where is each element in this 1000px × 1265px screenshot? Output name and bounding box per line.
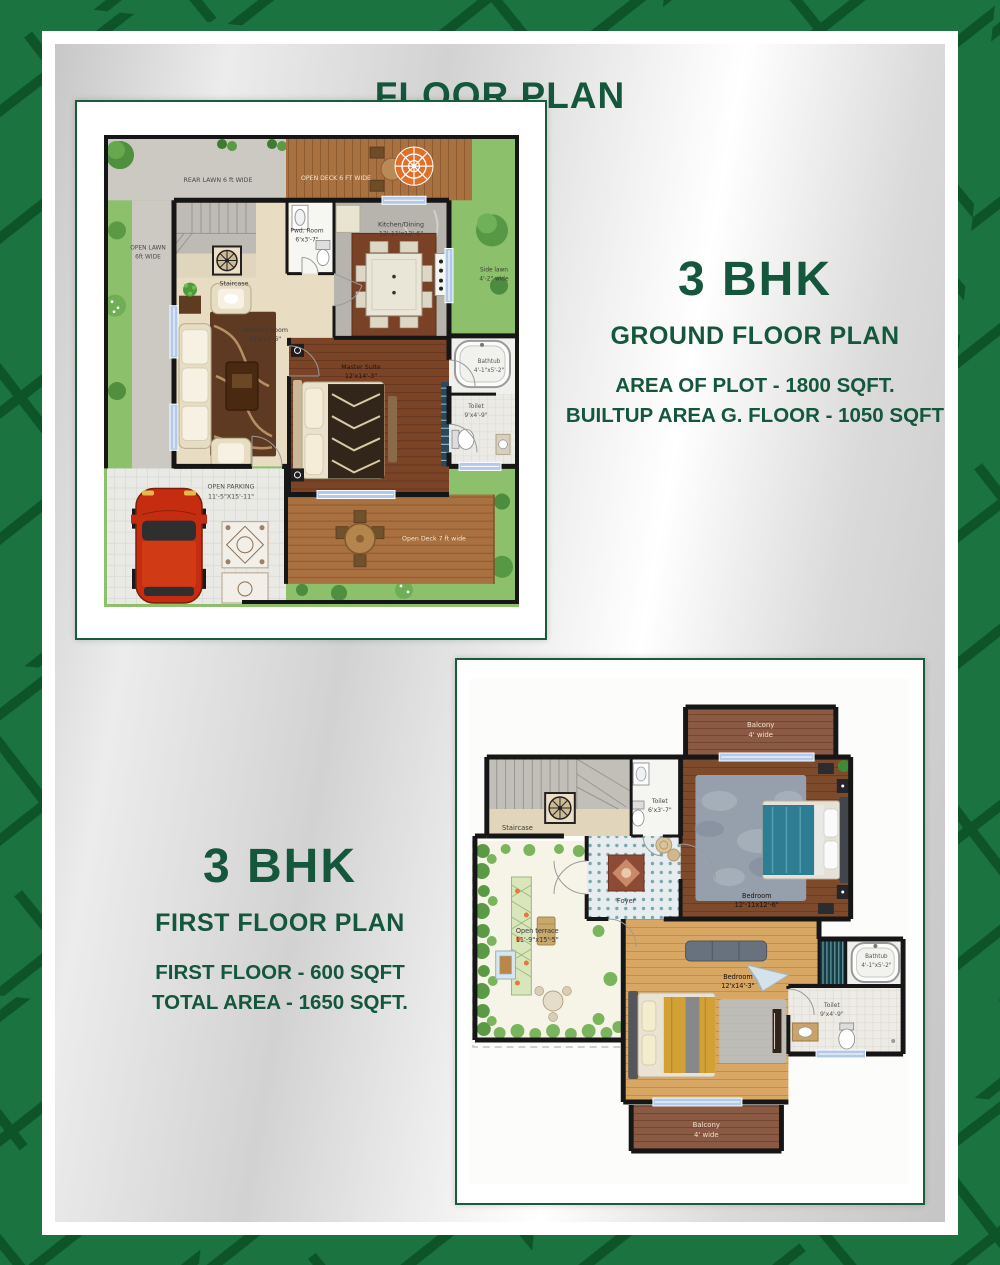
sink-icon — [496, 434, 510, 454]
fridge-icon — [336, 205, 360, 232]
wardrobe-icon — [819, 939, 846, 986]
kitchen-label: Kitchen/Dining — [378, 221, 424, 228]
svg-text:4'-1"x5'-2": 4'-1"x5'-2" — [861, 963, 891, 969]
first-bhk-heading: 3 BHK — [72, 843, 488, 891]
first-area-line2: TOTAL AREA - 1650 SQFT. — [72, 988, 488, 1018]
ground-floor-info: 3 BHK GROUND FLOOR PLAN AREA OF PLOT - 1… — [552, 256, 958, 430]
ornamental-tile-icon — [222, 522, 268, 568]
svg-text:11'x14'-6": 11'x14'-6" — [249, 336, 281, 343]
bed-icon — [763, 797, 850, 883]
svg-text:4'-2" wide: 4'-2" wide — [479, 277, 509, 283]
open-deck-bottom-label: Open Deck 7 ft wide — [402, 536, 466, 543]
svg-text:12'x14'-3": 12'x14'-3" — [721, 982, 754, 990]
terrace-label: Open terrace — [516, 927, 559, 935]
ornamental-tile-icon — [222, 573, 268, 603]
svg-text:11'-5"X15'-11": 11'-5"X15'-11" — [208, 494, 254, 501]
vanity-icon — [792, 1023, 818, 1041]
svg-text:4' wide: 4' wide — [748, 731, 773, 739]
svg-text:12'-11x12'-6": 12'-11x12'-6" — [735, 901, 779, 909]
bath-annex — [449, 336, 516, 467]
toilet-icon — [452, 429, 474, 449]
open-lawn-label: OPEN LAWN — [130, 245, 166, 251]
bedroom-2-label: Bedroom — [723, 973, 752, 981]
plant-icon — [838, 760, 850, 772]
master-suite — [289, 338, 449, 495]
svg-text:6ft WIDE: 6ft WIDE — [135, 255, 161, 261]
ground-floor-plan-drawing: REAR LAWN 6 ft WIDE OPEN DECK 6 FT WIDE … — [104, 135, 519, 607]
open-parking — [107, 468, 286, 604]
ground-area-line2: BUILTUP AREA G. FLOOR - 1050 SQFT — [552, 401, 958, 431]
svg-text:11'-9"x15'-5": 11'-9"x15'-5" — [516, 936, 559, 944]
staircase-ground — [176, 202, 256, 277]
ground-bhk-heading: 3 BHK — [552, 256, 958, 304]
svg-text:6'x3'-7": 6'x3'-7" — [295, 236, 318, 243]
bedroom-1-label: Bedroom — [742, 892, 771, 900]
first-floor-plan-drawing: Balcony 4' wide Staircase Toilet 6'x3'-7… — [470, 679, 910, 1184]
parking-label: OPEN PARKING — [207, 483, 254, 490]
staircase-label: Staircase — [220, 281, 249, 288]
ground-area-line1: AREA OF PLOT - 1800 SQFT. — [552, 371, 958, 401]
balcony-top-label: Balcony — [747, 721, 774, 729]
ground-floor-plan-card: REAR LAWN 6 ft WIDE OPEN DECK 6 FT WIDE … — [75, 100, 547, 640]
foyer — [587, 836, 681, 919]
drawing-room-label: Drawing Room — [242, 327, 288, 334]
svg-text:9'x4'-9": 9'x4'-9" — [464, 412, 487, 419]
first-floor-info: 3 BHK FIRST FLOOR PLAN FIRST FLOOR - 600… — [72, 843, 488, 1017]
svg-text:12'-11'x12'-6": 12'-11'x12'-6" — [379, 230, 423, 237]
svg-text:6'x3'-7": 6'x3'-7" — [648, 807, 672, 814]
toilet-icon — [839, 1023, 855, 1049]
foyer-label: Foyer — [617, 897, 636, 905]
sofa-icon — [686, 941, 767, 961]
open-deck-top — [286, 138, 472, 200]
svg-text:12'x14'-3": 12'x14'-3" — [345, 373, 377, 380]
rear-lawn-label: REAR LAWN 6 ft WIDE — [184, 177, 253, 184]
balcony-bottom-label: Balcony — [693, 1121, 720, 1129]
toilet-bottom-label: Toilet — [823, 1002, 841, 1009]
plant-icon — [183, 283, 197, 297]
car-icon — [131, 488, 207, 602]
bed-icon — [628, 991, 715, 1079]
svg-text:9'x4'-9": 9'x4'-9" — [820, 1011, 844, 1018]
compass-medallion-icon — [545, 793, 575, 823]
umbrella-icon — [395, 147, 433, 185]
svg-text:4' wide: 4' wide — [694, 1131, 719, 1139]
svg-text:4'-1"x5'-2": 4'-1"x5'-2" — [474, 368, 505, 374]
brochure-page: FLOOR PLAN — [0, 0, 1000, 1265]
compass-medallion-icon — [213, 246, 241, 274]
toilet-top-label: Toilet — [651, 798, 669, 805]
bed-icon — [293, 380, 384, 480]
staircase-label: Staircase — [502, 824, 533, 832]
first-plan-name: FIRST FLOOR PLAN — [72, 909, 488, 938]
first-floor-plan-card: Balcony 4' wide Staircase Toilet 6'x3'-7… — [455, 658, 925, 1205]
pwd-room-label: Pwd. Room — [290, 227, 323, 234]
bathtub-label: Bathtub — [478, 359, 501, 365]
terrace-rug-icon — [496, 951, 516, 979]
first-area-line1: FIRST FLOOR - 600 SQFT — [72, 958, 488, 988]
toilet-label: Toilet — [467, 403, 484, 410]
master-suite-label: Master Suite — [341, 364, 381, 371]
tv-console-icon — [773, 1009, 782, 1053]
ground-plan-name: GROUND FLOOR PLAN — [552, 322, 958, 351]
bathtub-label: Bathtub — [865, 954, 888, 960]
side-lawn-label: Side lawn — [480, 268, 508, 274]
open-deck-top-label: OPEN DECK 6 FT WIDE — [301, 175, 371, 182]
